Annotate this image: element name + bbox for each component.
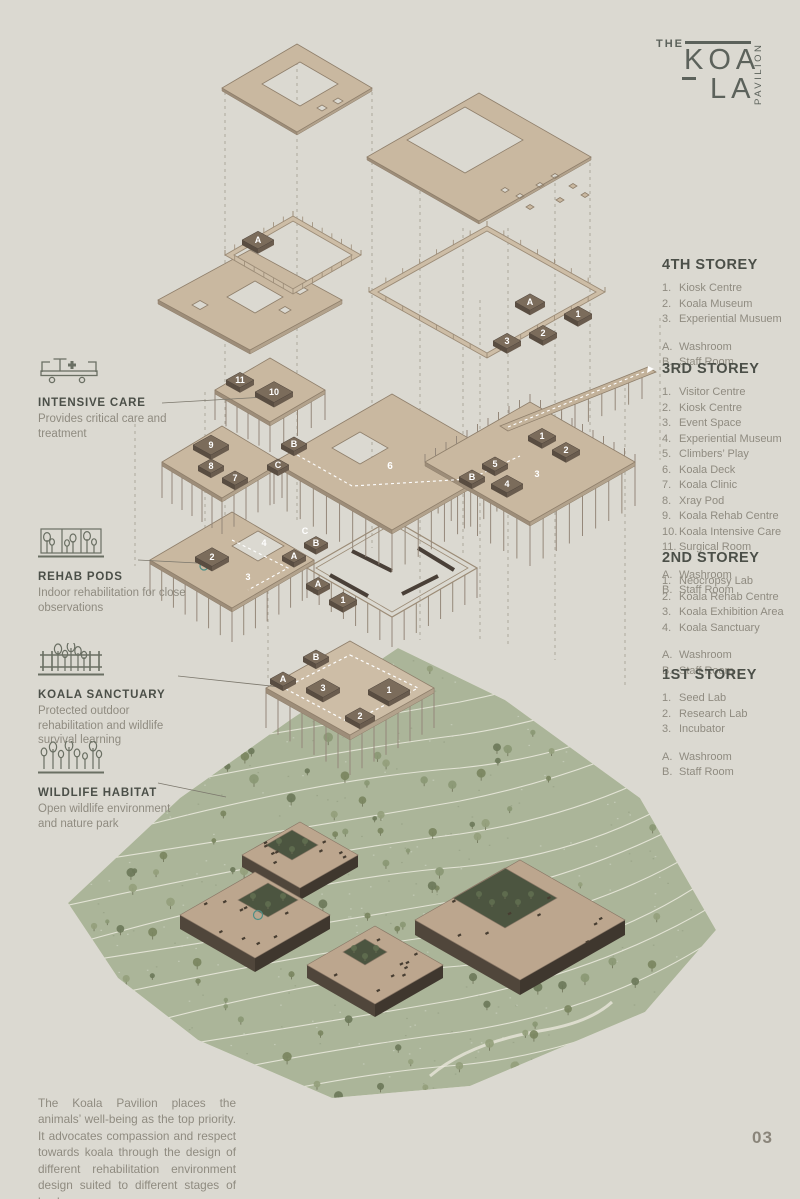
- legend-row-number: 1.: [662, 281, 679, 297]
- legend-row-label: Washroom: [679, 648, 732, 664]
- room-marker-label: A: [527, 297, 534, 307]
- annotation-description: Provides critical care and treatment: [38, 412, 190, 441]
- poster-page: AA1231110987BC6B54321234ABCA1BA312 THE K…: [0, 0, 800, 1199]
- legend-row-label: Xray Pod: [679, 494, 724, 510]
- room-marker-label: 3: [320, 683, 325, 693]
- room-marker-label: 1: [386, 685, 391, 695]
- legend-row-label: Seed Lab: [679, 691, 726, 707]
- legend-row-label: Koala Clinic: [679, 478, 737, 494]
- legend-row: 9.Koala Rehab Centre: [662, 509, 797, 525]
- legend-row-label: Washroom: [679, 750, 732, 766]
- legend-row-label: Washroom: [679, 340, 732, 356]
- legend-row: 1.Neocropsy Lab: [662, 574, 797, 590]
- legend-row-number: B.: [662, 765, 679, 781]
- legend-row-label: Koala Rehab Centre: [679, 509, 779, 525]
- annotation-description: Indoor rehabilitation for close observat…: [38, 586, 190, 615]
- indoor-trees-icon: [38, 527, 190, 564]
- legend-row-label: Koala Museum: [679, 297, 752, 313]
- legend-row: 3.Incubator: [662, 722, 797, 738]
- room-marker-label: A: [291, 551, 298, 561]
- room-marker-label: 10: [269, 387, 279, 397]
- legend-row: A.Washroom: [662, 340, 797, 356]
- room-marker-label: 5: [492, 459, 497, 469]
- legend-row-number: 9.: [662, 509, 679, 525]
- legend-row-label: Staff Room: [679, 765, 734, 781]
- room-marker-label: A: [315, 579, 322, 589]
- legend-row-number: 3.: [662, 416, 679, 432]
- legend-row-number: 8.: [662, 494, 679, 510]
- room-marker-label: B: [313, 652, 320, 662]
- project-description: The Koala Pavilion places the animals’ w…: [38, 1095, 236, 1199]
- logo-la: LA: [710, 73, 755, 106]
- room-marker-label: 4: [261, 538, 266, 548]
- legend-row-label: Kiosk Centre: [679, 401, 742, 417]
- legend-row-number: 3.: [662, 605, 679, 621]
- stretcher-icon: [38, 355, 190, 390]
- annotation-intensive-care: INTENSIVE CAREProvides critical care and…: [38, 355, 190, 441]
- legend-row-number: 2.: [662, 590, 679, 606]
- annotation-wildlife-habitat: WILDLIFE HABITATOpen wildlife environmen…: [38, 741, 190, 831]
- legend-row-number: A.: [662, 340, 679, 356]
- room-marker-label: 6: [387, 461, 393, 472]
- room-marker-label: 3: [504, 336, 509, 346]
- legend-row-number: 1.: [662, 385, 679, 401]
- room-marker-label: A: [255, 235, 262, 245]
- annotation-description: Open wildlife environment and nature par…: [38, 802, 190, 831]
- room-marker-label: B: [313, 538, 320, 548]
- room-marker-label: 2: [540, 328, 545, 338]
- room-marker-label: 1: [340, 595, 345, 605]
- legend-row: 4.Koala Sanctuary: [662, 621, 797, 637]
- legend-row-label: Koala Sanctuary: [679, 621, 760, 637]
- storey-title: 2ND STOREY: [662, 550, 797, 566]
- legend-row: 4.Experiential Museum: [662, 432, 797, 448]
- annotation-koala-sanctuary: KOALA SANCTUARYProtected outdoor rehabil…: [38, 643, 190, 748]
- storey-title: 3RD STOREY: [662, 361, 797, 377]
- storey-section: 4TH STOREY1.Kiosk Centre2.Koala Museum3.…: [662, 257, 797, 371]
- storey-section: 1ST STOREY1.Seed Lab2.Research Lab3.Incu…: [662, 667, 797, 781]
- room-marker-label: C: [302, 526, 309, 536]
- legend-row: B.Staff Room: [662, 765, 797, 781]
- legend-row-number: 3.: [662, 312, 679, 328]
- room-marker-label: 8: [208, 461, 213, 471]
- legend-row: 8.Xray Pod: [662, 494, 797, 510]
- legend-row: 1.Visitor Centre: [662, 385, 797, 401]
- legend-row: 3.Koala Exhibition Area: [662, 605, 797, 621]
- legend-row-number: 3.: [662, 722, 679, 738]
- room-marker-label: 9: [208, 440, 213, 450]
- room-marker-label: 7: [232, 473, 237, 483]
- legend-row: 2.Koala Museum: [662, 297, 797, 313]
- logo-the: THE: [656, 38, 684, 50]
- legend-row-label: Research Lab: [679, 707, 748, 723]
- legend-row: 2.Kiosk Centre: [662, 401, 797, 417]
- legend-row: 6.Koala Deck: [662, 463, 797, 479]
- logo-pavilion: PAVILION: [753, 39, 764, 105]
- annotation-rehab-pods: REHAB PODSIndoor rehabilitation for clos…: [38, 527, 190, 615]
- logo-rule-small: [682, 77, 696, 80]
- room-marker-label: 1: [575, 309, 580, 319]
- room-marker-label: 2: [357, 711, 362, 721]
- legend-row-number: 2.: [662, 707, 679, 723]
- legend-row-number: 6.: [662, 463, 679, 479]
- legend-row-number: 2.: [662, 401, 679, 417]
- room-marker-label: 4: [504, 479, 509, 489]
- legend-row: 1.Kiosk Centre: [662, 281, 797, 297]
- legend-row: 5.Climbers’ Play: [662, 447, 797, 463]
- legend-row-label: Koala Exhibition Area: [679, 605, 784, 621]
- legend-row-label: Koala Rehab Centre: [679, 590, 779, 606]
- legend-row: 2.Koala Rehab Centre: [662, 590, 797, 606]
- room-marker-label: B: [469, 472, 476, 482]
- annotation-title: REHAB PODS: [38, 571, 190, 583]
- legend-row: 2.Research Lab: [662, 707, 797, 723]
- legend-row: 3.Experiential Musuem: [662, 312, 797, 328]
- room-marker-label: 1: [539, 431, 544, 441]
- storey-title: 1ST STOREY: [662, 667, 797, 683]
- legend-row-label: Kiosk Centre: [679, 281, 742, 297]
- storey-title: 4TH STOREY: [662, 257, 797, 273]
- legend-row-number: 10.: [662, 525, 679, 541]
- legend-row-number: 4.: [662, 621, 679, 637]
- legend-row-label: Experiential Musuem: [679, 312, 782, 328]
- fenced-trees-icon: [38, 643, 190, 682]
- room-marker-label: C: [275, 460, 282, 470]
- legend-row: 3.Event Space: [662, 416, 797, 432]
- annotation-title: INTENSIVE CARE: [38, 397, 190, 409]
- legend-row: A.Washroom: [662, 648, 797, 664]
- legend-row-label: Incubator: [679, 722, 725, 738]
- legend-row-number: 5.: [662, 447, 679, 463]
- legend-row-label: Experiential Museum: [679, 432, 782, 448]
- legend-row-number: A.: [662, 750, 679, 766]
- room-marker-label: 3: [245, 572, 250, 582]
- annotation-title: WILDLIFE HABITAT: [38, 787, 190, 799]
- trees-icon: [38, 741, 190, 780]
- annotation-title: KOALA SANCTUARY: [38, 689, 190, 701]
- room-marker-label: B: [291, 439, 298, 449]
- legend-row-label: Climbers’ Play: [679, 447, 749, 463]
- legend-row-number: 4.: [662, 432, 679, 448]
- legend-row-label: Visitor Centre: [679, 385, 745, 401]
- room-marker-label: A: [280, 674, 287, 684]
- room-marker-label: 2: [563, 445, 568, 455]
- legend-row-label: Koala Intensive Care: [679, 525, 781, 541]
- legend-row: 10.Koala Intensive Care: [662, 525, 797, 541]
- legend-row: A.Washroom: [662, 750, 797, 766]
- room-marker-label: 3: [534, 469, 539, 479]
- logo: THE KOA LA PAVILION: [653, 33, 778, 107]
- legend-row-label: Neocropsy Lab: [679, 574, 753, 590]
- legend-row-number: A.: [662, 648, 679, 664]
- legend-row-label: Event Space: [679, 416, 741, 432]
- page-number: 03: [752, 1128, 773, 1148]
- legend-row-label: Koala Deck: [679, 463, 735, 479]
- storey-section: 2ND STOREY1.Neocropsy Lab2.Koala Rehab C…: [662, 550, 797, 679]
- room-marker-label: 11: [235, 375, 245, 385]
- legend-row-number: 1.: [662, 574, 679, 590]
- legend-row: 7.Koala Clinic: [662, 478, 797, 494]
- legend-row-number: 2.: [662, 297, 679, 313]
- legend-row: 1.Seed Lab: [662, 691, 797, 707]
- legend-row-number: 1.: [662, 691, 679, 707]
- room-marker-label: 2: [209, 552, 214, 562]
- legend-row-number: 7.: [662, 478, 679, 494]
